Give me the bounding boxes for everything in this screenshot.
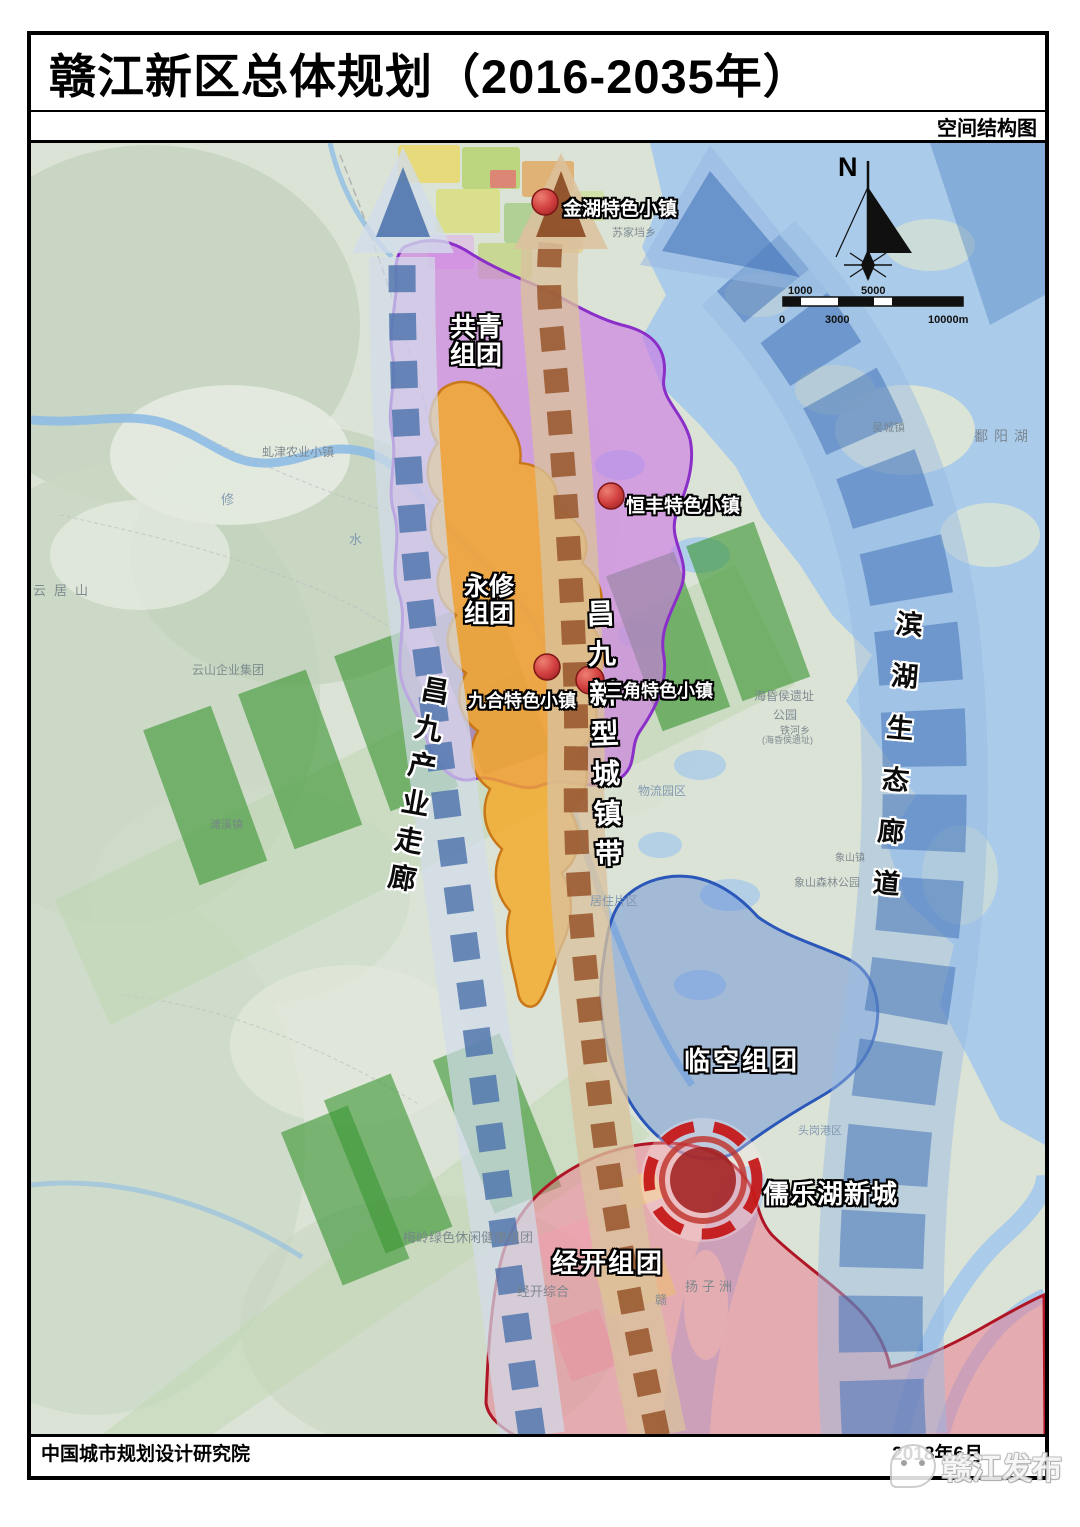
watermark-text: 赣江发布 (942, 1444, 1062, 1488)
dot-jinhu (532, 189, 558, 215)
dot-sanjiao (576, 666, 604, 694)
chat-bubble-icon (890, 1444, 936, 1488)
planning-map-page: { "header": { "title": "赣江新区总体规划（2016-20… (0, 0, 1080, 1527)
dot-jiuhe (534, 654, 560, 680)
map-graphics (31, 143, 1045, 1434)
rulehu-target-marker (641, 1118, 765, 1242)
subtitle-bar: 空间结构图 (31, 112, 1045, 143)
map-canvas (31, 143, 1045, 1434)
title-bar: 赣江新区总体规划（2016-2035年） (31, 35, 1045, 112)
map-type-label: 空间结构图 (937, 112, 1037, 141)
watermark: 赣江发布 (890, 1444, 1062, 1488)
dot-hengfeng (598, 483, 624, 509)
scale-bar (783, 297, 963, 306)
map-sheet-frame: 赣江新区总体规划（2016-2035年） 空间结构图 (27, 31, 1049, 1480)
page-title: 赣江新区总体规划（2016-2035年） (49, 38, 811, 107)
footer-institute: 中国城市规划设计研究院 (41, 1439, 250, 1466)
